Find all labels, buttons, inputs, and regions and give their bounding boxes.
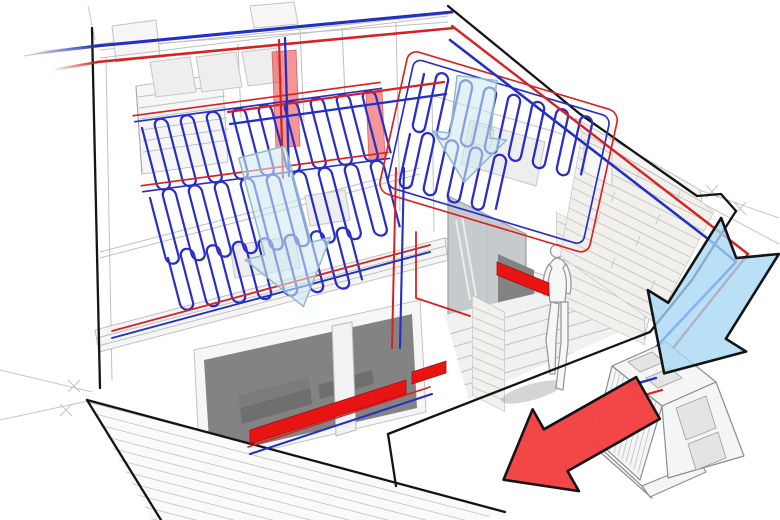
person-shadow <box>499 375 565 408</box>
illustration-canvas <box>0 0 780 520</box>
supply-pipe-fade <box>30 46 97 54</box>
chimney-box <box>250 2 298 28</box>
return-pipe-fade <box>52 62 98 70</box>
hvac-cutaway-illustration <box>0 0 780 520</box>
